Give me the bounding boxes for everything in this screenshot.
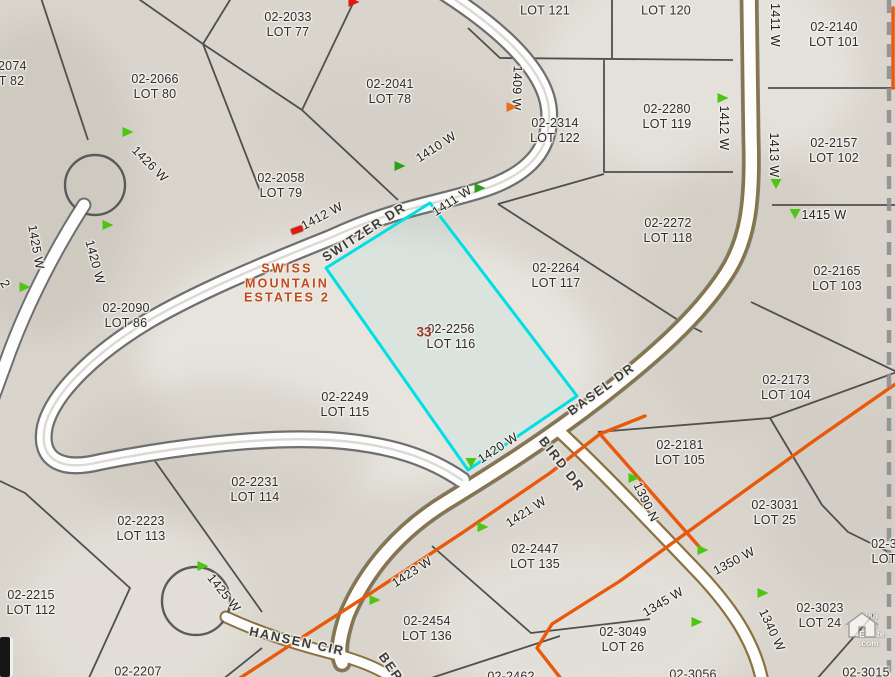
parcel-label: 02-2454LOT 136	[402, 614, 452, 644]
parcel-label: 02-2215LOT 112	[7, 588, 56, 618]
parcel-label: 02-2033LOT 77	[264, 10, 311, 40]
parcel-label: 02-2264LOT 117	[532, 261, 581, 291]
map-canvas[interactable]: 02-2033LOT 7702-2074LOT 8202-2066LOT 800…	[0, 0, 895, 677]
address-label: 1413 W	[767, 133, 781, 178]
address-label: 1411 W	[768, 3, 782, 47]
parcel-label: 02-3049LOT 26	[599, 625, 646, 655]
parcel-label: LOT 120	[641, 4, 691, 19]
subdivision-name: SWISS MOUNTAIN ESTATES 2	[244, 261, 330, 305]
address-label: 1409 W	[509, 65, 525, 110]
parcel-label: 02-2173LOT 104	[761, 373, 811, 403]
address-label: 1412 W	[717, 106, 731, 151]
parcel-label: 02-3031LOT 25	[751, 498, 798, 528]
parcel-label: 02-2165LOT 103	[812, 264, 862, 294]
parcel-label: 02-3023LOT 24	[796, 601, 843, 631]
parcel-label: 02-2249LOT 115	[321, 390, 370, 420]
house-icon	[845, 612, 879, 638]
parcel-label: 02-2157LOT 102	[809, 136, 859, 166]
parcel-label: 02-2074LOT 82	[0, 59, 27, 89]
parcel-label: 02-2207	[114, 665, 161, 677]
parcel-label: 02-2041LOT 78	[366, 77, 413, 107]
parcel-label: 02-2090LOT 86	[102, 301, 149, 331]
parcel-label: 02-2280LOT 119	[643, 102, 692, 132]
watermark-logo: Utah Real Estate .com	[845, 612, 895, 674]
parcel-label: 02-2066LOT 80	[131, 72, 178, 102]
parcel-label: 02-2462	[487, 670, 534, 677]
cul-de-sac-1426w	[65, 155, 125, 215]
parcel-label: 02-2140LOT 101	[809, 20, 859, 50]
address-label: 1415 W	[802, 208, 847, 222]
parcel-label: 02-2256LOT 116	[427, 322, 476, 352]
parcel-label: LOT 121	[520, 4, 570, 19]
parcel-label: 02-2181LOT 105	[655, 438, 705, 468]
parcel-label: 02-2231LOT 114	[231, 475, 280, 505]
parcel-label: 02-2272LOT 118	[644, 216, 693, 246]
parcel-label: 02-3056	[669, 668, 716, 677]
parcel-label: 02-2314LOT 122	[530, 116, 580, 146]
parcel-label: 02-2447LOT 135	[510, 542, 560, 572]
parcel-label: 02-3LOT	[871, 537, 895, 567]
partial-logo	[0, 637, 13, 677]
parcel-label: 02-2058LOT 79	[257, 171, 304, 201]
site-number-label: 33	[416, 325, 431, 340]
subdivision-boundary	[237, 8, 895, 677]
parcel-label: 02-2223LOT 113	[117, 514, 166, 544]
